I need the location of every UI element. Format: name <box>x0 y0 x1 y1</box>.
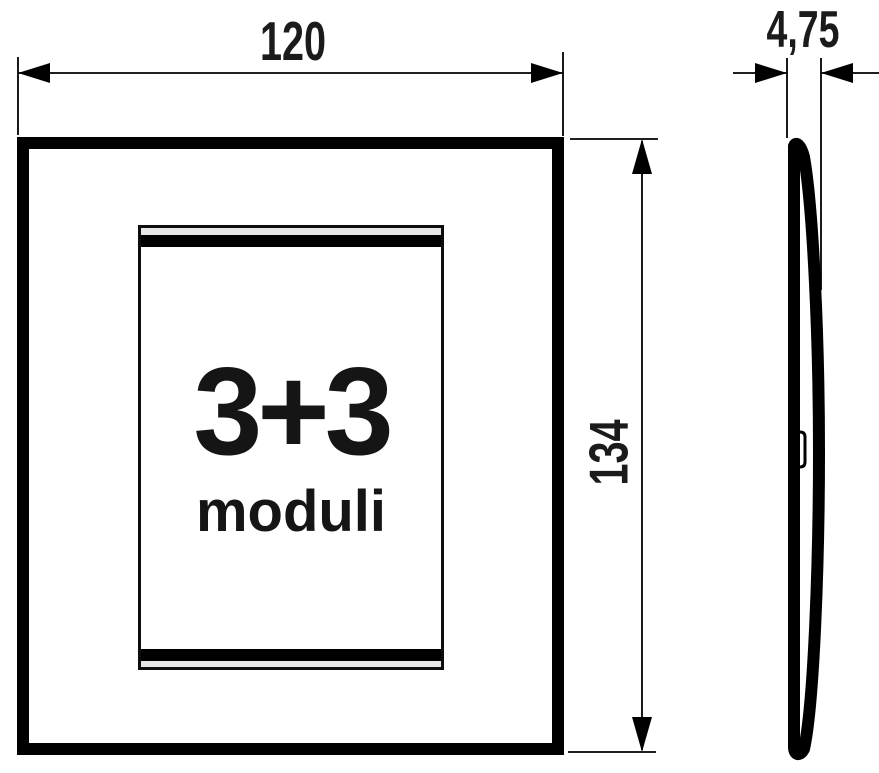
module-window-top-bar <box>141 235 441 247</box>
module-window-bottom-trim <box>141 661 441 667</box>
thickness-dimension-value: 4,75 <box>695 4 879 56</box>
arrow-left-icon <box>18 63 50 83</box>
technical-drawing-cover-plate: 3+3 moduli 120 4,75 134 <box>0 0 879 773</box>
moduli-label: moduli <box>138 483 444 541</box>
side-view-profile <box>794 144 819 754</box>
height-dimension-value: 134 <box>582 345 637 561</box>
arrow-down-icon <box>632 717 652 752</box>
module-window-top-trim <box>141 228 441 235</box>
arrow-right-icon <box>531 63 563 83</box>
module-window-bottom-bar <box>141 649 441 661</box>
module-count-label: 3+3 <box>138 350 444 474</box>
width-dimension-value: 120 <box>185 14 401 69</box>
arrow-inward-right-icon <box>755 63 787 83</box>
arrow-up-icon <box>632 139 652 174</box>
arrow-inward-left-icon <box>821 63 853 83</box>
